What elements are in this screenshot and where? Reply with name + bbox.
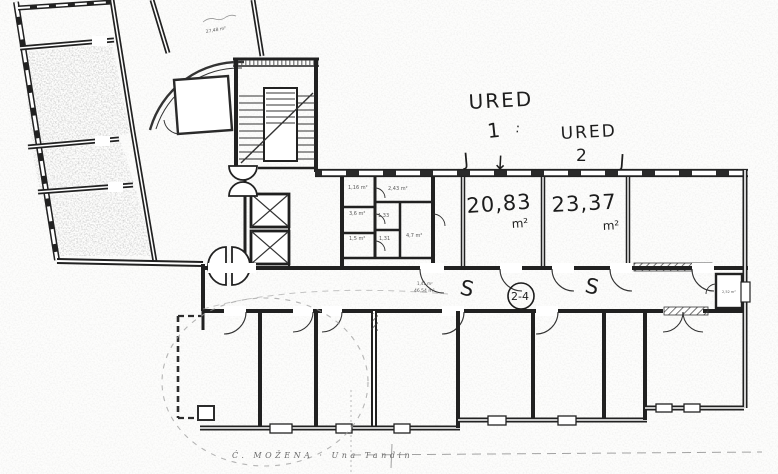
- down-arrow: ↓: [492, 152, 509, 175]
- area-wc-right: 2,52 m²: [722, 290, 736, 294]
- area-ured1-unit: m²: [511, 216, 529, 231]
- area-corridor-line1: 1,41 m²: [417, 281, 433, 286]
- area-ured2-unit: m²: [602, 218, 619, 233]
- area-wc-4: 1,5 m²: [349, 236, 365, 242]
- ured1-number: 1: [486, 118, 501, 143]
- wing-room-shading-3: [42, 189, 153, 256]
- area-wc-1: 1,16 m²: [348, 185, 368, 191]
- court-room: [174, 76, 232, 134]
- area-anteroom: 2,43 m²: [388, 186, 408, 192]
- right-wall-window: [741, 282, 750, 302]
- area-wc-3: 1,33: [378, 213, 389, 219]
- bottom-wall-3-hatch: [371, 313, 378, 331]
- area-corridor-line2: 46,54 m²: [414, 288, 435, 294]
- ured2-number: 2: [576, 146, 587, 166]
- ured1-word: URED: [468, 87, 534, 114]
- area-ured1: 20,83: [466, 190, 533, 218]
- floorplan-scan: 1,16 m²2,43 m²3,6 m²1,331,5 m²1,314,7 m²…: [0, 0, 778, 474]
- room-number-circled: 2-4: [511, 290, 529, 303]
- area-wc-2: 3,6 m²: [349, 211, 365, 217]
- wing-door-gap-3: [108, 182, 123, 192]
- area-lobby: 4,7 m²: [406, 233, 422, 239]
- main-top-wall: [315, 170, 748, 177]
- ured2-word: URED: [560, 121, 617, 144]
- area-ured2: 23,37: [551, 190, 617, 217]
- floorplan-drawing: 1,16 m²2,43 m²3,6 m²1,331,5 m²1,314,7 m²…: [0, 0, 778, 474]
- street-caption: Ć. MOŽENA · Una Tandin: [232, 451, 413, 460]
- area-wc-5: 1,31: [379, 236, 390, 242]
- wing-door-gap-2: [95, 136, 110, 146]
- wing-door-gap-1: [92, 36, 107, 46]
- hatched-corridor-wall: [664, 307, 708, 315]
